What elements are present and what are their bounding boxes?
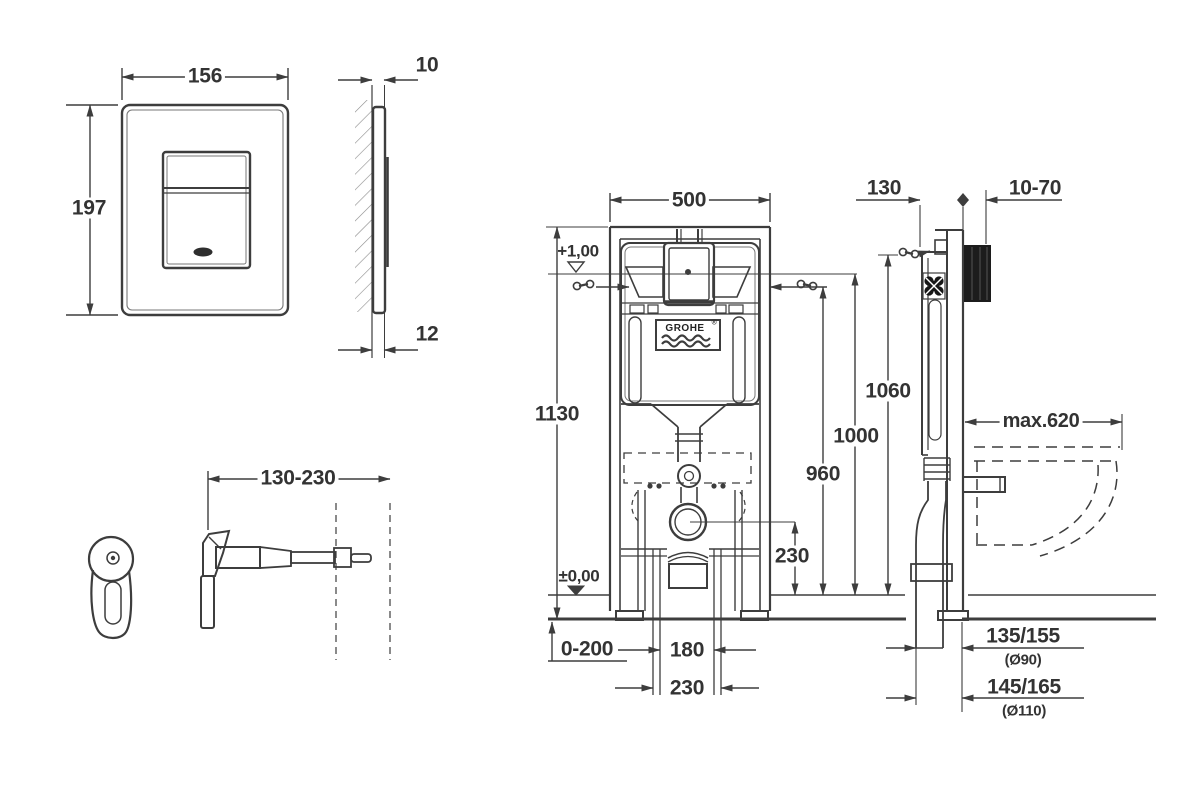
fixing-outer-label: 230	[667, 678, 707, 699]
plate-bottom-offset-label: 12	[416, 324, 439, 345]
frame-front-view	[610, 227, 770, 695]
wall-bracket-front-view	[89, 537, 133, 638]
support-bracket-dashed	[624, 453, 751, 483]
technical-drawing-page: 156 197 10 12 130-230 500 1130 +1,00 ±0,…	[0, 0, 1200, 804]
drain-socket	[621, 504, 759, 588]
fixing-inner-label: 180	[667, 640, 707, 661]
wall-hatching	[355, 100, 372, 312]
fill-valve-right	[713, 267, 750, 297]
wrench-icon-right	[797, 280, 816, 289]
cistern-slot-left	[629, 317, 641, 403]
plate-side-dimensions	[338, 80, 418, 350]
plate-width-label: 156	[185, 66, 225, 87]
flush-button-mark	[194, 248, 213, 257]
level-marker-solid	[568, 586, 584, 595]
wrench-icon-left	[573, 280, 593, 289]
wall-face-marker	[957, 193, 969, 207]
outlet-90-dia-label: (Ø90)	[1005, 653, 1042, 668]
flush-plate-side-view	[355, 85, 388, 358]
grohe-logo-text: GROHE	[665, 324, 704, 334]
plate-height-label: 197	[69, 198, 109, 219]
floor-level-label: ±0,00	[559, 568, 600, 585]
outlet-height-label: 230	[772, 546, 812, 567]
outlet-110-label: 145/165	[987, 677, 1061, 698]
level-marker-open	[568, 262, 584, 272]
frame-height-label: 1130	[532, 404, 582, 425]
height-1000-label: 1000	[830, 426, 882, 447]
outlet-110-dia-label: (Ø110)	[1002, 704, 1046, 719]
actuator-rosette-icon	[924, 276, 943, 295]
flush-pipe	[675, 427, 703, 503]
height-960-label: 960	[803, 464, 843, 485]
bowl-outlet-stub	[963, 477, 1005, 492]
grohe-logo-registered-mark: ®	[712, 320, 717, 327]
finished-wall-block	[964, 245, 991, 302]
fill-valve-left	[626, 267, 663, 297]
outlet-90-label: 135/155	[986, 626, 1060, 647]
cistern-slot-right	[733, 317, 745, 403]
frame-side-view	[899, 230, 1120, 648]
max-depth-label: max.620	[1000, 411, 1083, 431]
toilet-bowl-dashed	[974, 447, 1120, 556]
floor-buildup-label: 0-200	[558, 639, 616, 660]
bracket-range-label: 130-230	[258, 468, 339, 489]
wall-bracket-side-view	[201, 503, 390, 660]
frame-depth-label: 130	[867, 178, 901, 199]
flush-plate-front-view	[122, 105, 288, 315]
wall-range-label: 10-70	[1009, 178, 1061, 199]
height-1060-label: 1060	[862, 381, 914, 402]
plate-top-offset-label: 10	[416, 55, 439, 76]
upper-level-label: +1,00	[557, 243, 599, 260]
frame-width-label: 500	[669, 190, 709, 211]
